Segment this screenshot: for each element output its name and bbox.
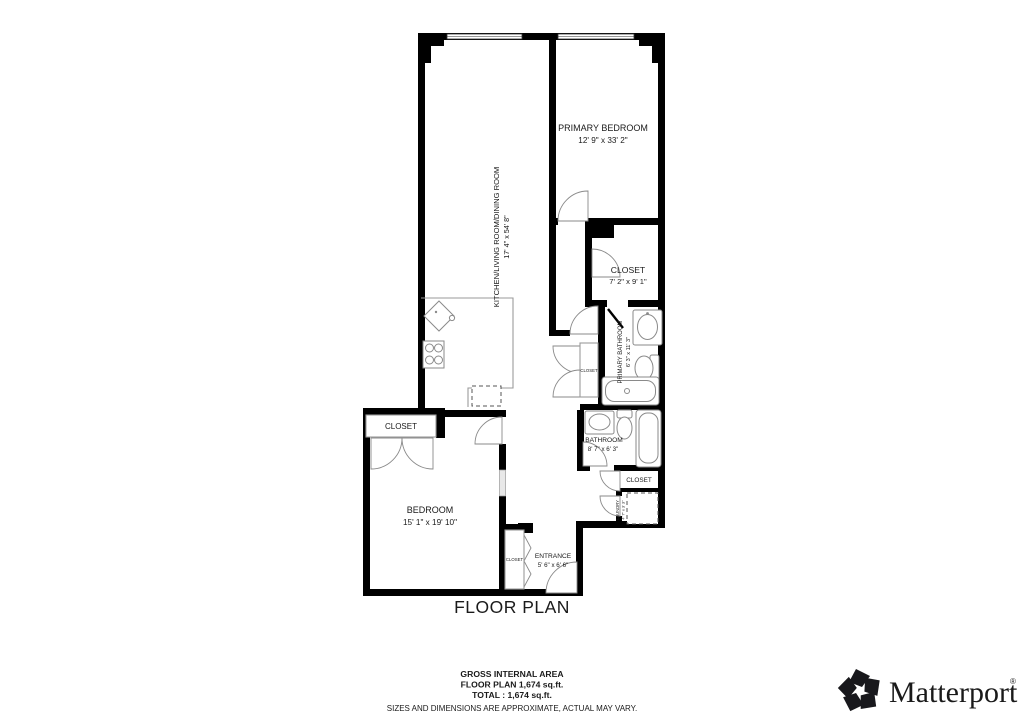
footer-area-line2: TOTAL : 1,674 sq.ft. [472, 690, 552, 700]
refrigerator [472, 386, 501, 406]
window-top-right [558, 34, 634, 39]
floor-plan-page: KITCHEN/LIVING ROOM/DINING ROOM 17' 4" x… [0, 0, 1024, 724]
stove [423, 341, 444, 368]
footer-area-block: GROSS INTERNAL AREA FLOOR PLAN 1,674 sq.… [387, 669, 637, 713]
washer-dryer [627, 493, 658, 524]
footer-area-heading: GROSS INTERNAL AREA [460, 669, 563, 679]
room-label-entrance-name: ENTRANCE [535, 553, 572, 560]
room-label-primary-bedroom-dims: 12' 9" x 33' 2" [578, 136, 628, 145]
bathtub-primary [602, 377, 659, 405]
floor-plan-title: FLOOR PLAN [454, 597, 570, 617]
toilet-bathroom [617, 410, 632, 439]
room-label-primary-bathroom-dims: 6' 3" x 11' 3" [626, 337, 632, 367]
room-label-linen-closet: CLOSET [626, 477, 652, 484]
window-bedroom-wall [500, 470, 506, 496]
room-label-primary-bedroom-name: PRIMARY BEDROOM [558, 123, 648, 133]
floor-plan-svg: KITCHEN/LIVING ROOM/DINING ROOM 17' 4" x… [0, 0, 1024, 724]
bathtub-bathroom [636, 410, 661, 467]
room-label-kitchen-name: KITCHEN/LIVING ROOM/DINING ROOM [492, 167, 501, 308]
matterport-logo: Matterport ® [836, 669, 1018, 715]
room-label-primary-bathroom-name: PRIMARY BATHROOM [618, 320, 624, 383]
footer-area-line1: FLOOR PLAN 1,674 sq.ft. [461, 680, 564, 690]
door-hallway [570, 306, 598, 334]
sink-primary [633, 310, 662, 345]
room-label-hall-closet: CLOSET [580, 368, 598, 373]
room-label-bedroom-dims: 15' 1" x 19' 10" [403, 518, 457, 527]
door-entrance-closet-bifold [524, 535, 531, 587]
door-hall-closet-lower [553, 370, 580, 397]
window-top-left [447, 34, 522, 39]
room-label-primary-closet-name: CLOSET [611, 265, 646, 275]
door-bedroom-closet-right [402, 438, 433, 469]
footer-disclaimer: SIZES AND DIMENSIONS ARE APPROXIMATE, AC… [387, 704, 637, 713]
room-label-bedroom-closet: CLOSET [385, 422, 417, 431]
room-label-kitchen-dims: 17' 4" x 54' 8" [502, 215, 511, 259]
door-primary-bedroom [558, 191, 588, 221]
room-label-laundry-dims: 4' 7" x 3' 3" [621, 500, 626, 520]
door-hall-closet-upper [553, 346, 580, 373]
door-linen-closet [600, 471, 620, 491]
room-label-laundry-name: LAUNDRY [615, 500, 620, 520]
door-bedroom [475, 417, 502, 444]
room-label-entrance-dims: 5' 6" x 6' 6" [538, 562, 569, 569]
room-label-primary-closet-dims: 7' 2" x 9' 1" [609, 277, 647, 286]
matterport-registered-icon: ® [1010, 677, 1016, 686]
room-label-bedroom-name: BEDROOM [407, 505, 454, 515]
matterport-logo-icon [836, 669, 884, 715]
matterport-wordmark: Matterport [889, 676, 1018, 709]
kitchen-sink [424, 301, 455, 331]
room-label-bathroom-dims: 8' 7" x 6' 3" [588, 446, 619, 453]
room-label-entrance-closet: CLOSET [506, 557, 524, 562]
door-bedroom-closet-left [371, 438, 402, 469]
sink-bathroom [585, 411, 614, 434]
room-label-bathroom-name: BATHROOM [585, 437, 623, 444]
